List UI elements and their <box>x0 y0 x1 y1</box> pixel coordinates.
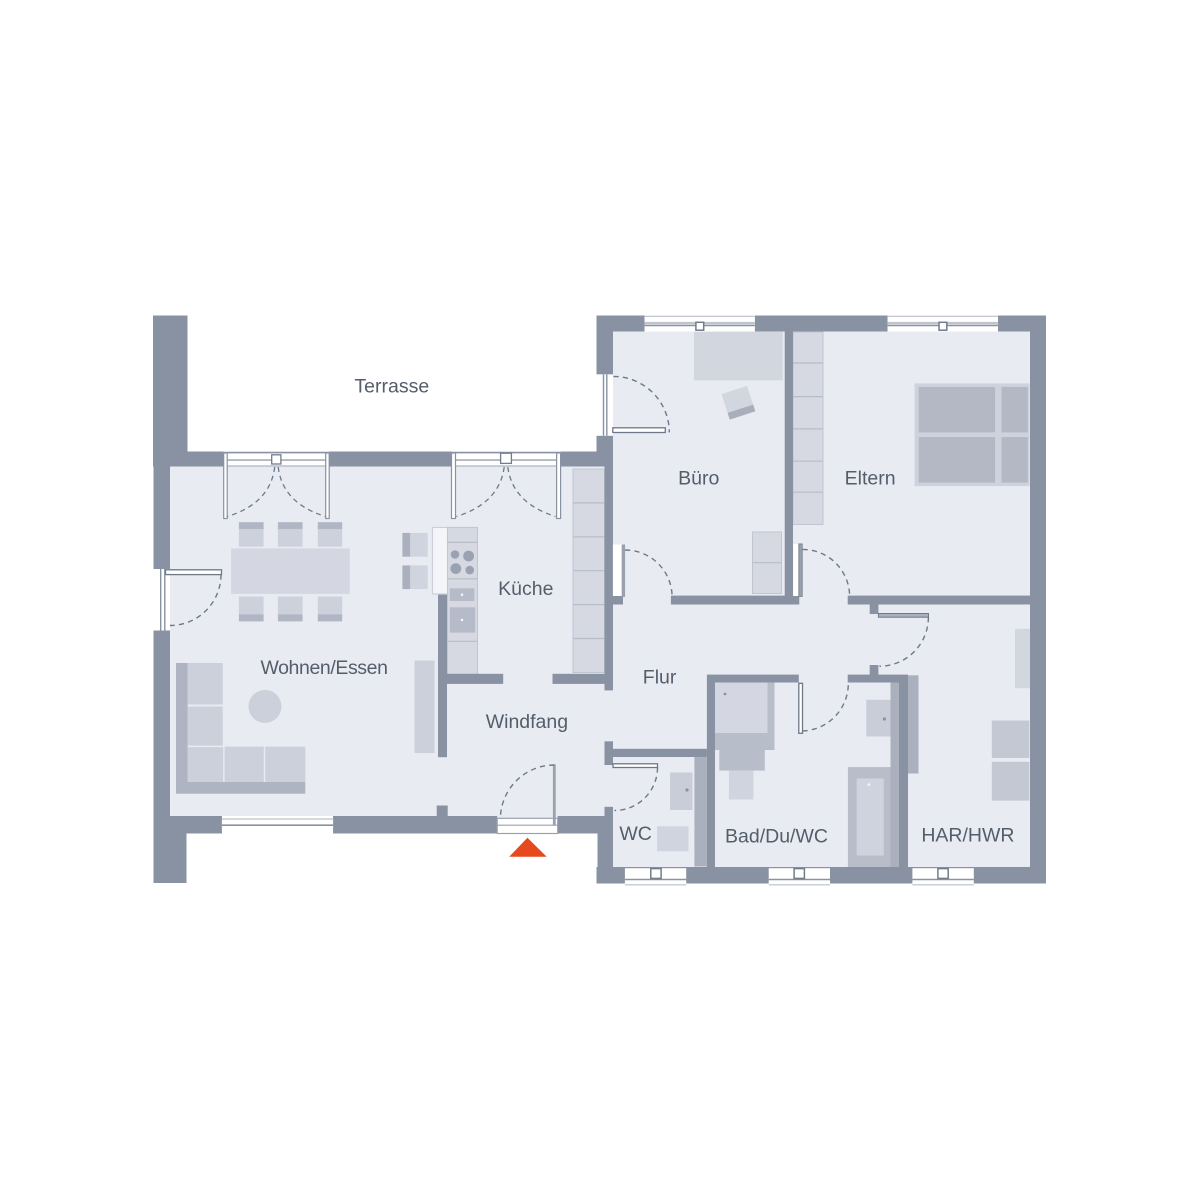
svg-text:Küche: Küche <box>498 578 553 600</box>
svg-text:Bad/Du/WC: Bad/Du/WC <box>725 826 828 848</box>
svg-text:Windfang: Windfang <box>486 711 568 733</box>
svg-text:Eltern: Eltern <box>845 468 896 490</box>
svg-text:WC: WC <box>619 823 652 845</box>
svg-text:Büro: Büro <box>678 468 719 490</box>
svg-text:Wohnen/Essen: Wohnen/Essen <box>260 657 387 679</box>
svg-text:Flur: Flur <box>643 666 677 688</box>
svg-text:Terrasse: Terrasse <box>354 376 429 398</box>
svg-text:HAR/HWR: HAR/HWR <box>921 825 1014 847</box>
